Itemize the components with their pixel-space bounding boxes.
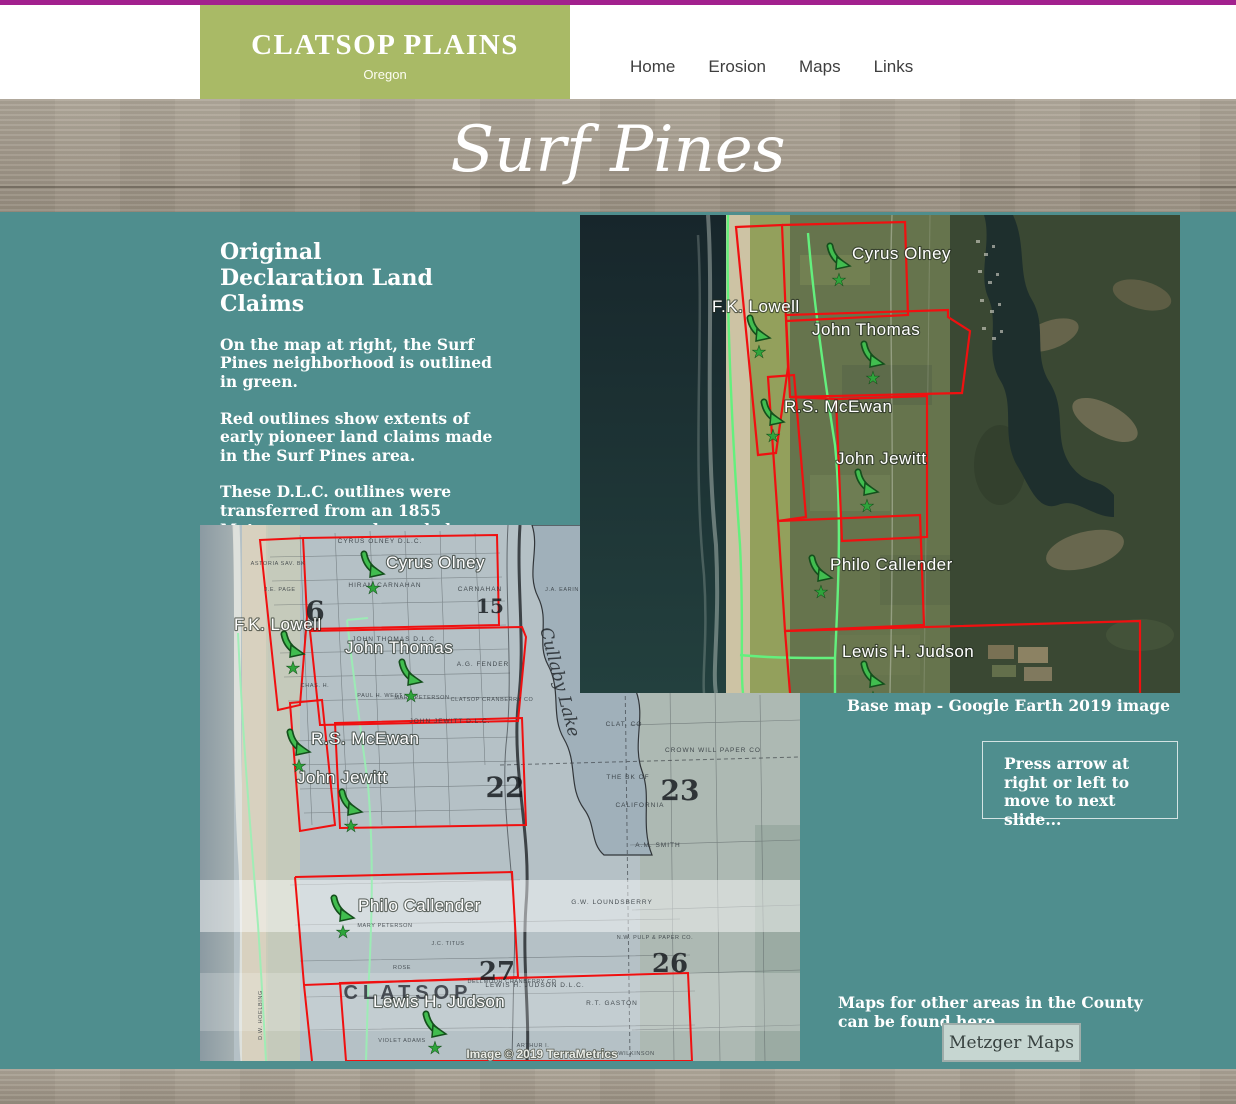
svg-text:N.W. PULP & PAPER CO.: N.W. PULP & PAPER CO. bbox=[617, 935, 694, 941]
claim-label: Philo Callender bbox=[830, 555, 953, 574]
claim-label: F.K. Lowell bbox=[234, 615, 322, 634]
top-accent-bar bbox=[0, 0, 1236, 5]
svg-text:HIRAM CARNAHAN: HIRAM CARNAHAN bbox=[348, 582, 421, 589]
svg-text:J.C. TITUS: J.C. TITUS bbox=[431, 941, 464, 947]
svg-text:A.M. SMITH: A.M. SMITH bbox=[635, 842, 680, 849]
svg-text:CYRUS OLNEY D.L.C.: CYRUS OLNEY D.L.C. bbox=[338, 538, 423, 545]
nav-item-maps[interactable]: Maps bbox=[799, 57, 841, 77]
footer-strip bbox=[0, 1069, 1236, 1104]
site-subtitle: Oregon bbox=[200, 67, 570, 82]
claim-label: Lewis H. Judson bbox=[373, 992, 505, 1011]
svg-text:A.G. FENDER: A.G. FENDER bbox=[457, 661, 510, 668]
svg-text:CHAS. H.: CHAS. H. bbox=[301, 683, 330, 689]
highlight-band bbox=[200, 880, 800, 932]
satellite-map-caption: Base map - Google Earth 2019 image bbox=[847, 696, 1207, 715]
slideshow-hint-box: Press arrow at right or left to move to … bbox=[982, 741, 1178, 819]
svg-text:22: 22 bbox=[486, 771, 525, 804]
intro-paragraph: On the map at right, the Surf Pines neig… bbox=[220, 336, 514, 392]
svg-text:15: 15 bbox=[476, 594, 504, 618]
nav-item-links[interactable]: Links bbox=[874, 57, 914, 77]
nav-item-erosion[interactable]: Erosion bbox=[708, 57, 766, 77]
claim-label: Lewis H. Judson bbox=[842, 642, 974, 661]
svg-text:R.T. GASTON: R.T. GASTON bbox=[586, 1000, 638, 1007]
nav-item-home[interactable]: Home bbox=[630, 57, 675, 77]
metzger-maps-button[interactable]: Metzger Maps bbox=[942, 1023, 1081, 1062]
site-header: CLATSOP PLAINS Oregon Home Erosion Maps … bbox=[0, 5, 1236, 99]
claim-label: John Thomas bbox=[345, 638, 453, 657]
claim-label: Cyrus Olney bbox=[386, 553, 485, 572]
image-credit: Image © 2019 TerraMetrics bbox=[466, 1047, 618, 1061]
svg-text:J.A. EARIN: J.A. EARIN bbox=[545, 587, 579, 593]
svg-text:MARY PETERSON: MARY PETERSON bbox=[394, 695, 449, 701]
svg-text:23: 23 bbox=[661, 774, 700, 807]
claim-label: John Jewitt bbox=[836, 449, 927, 468]
svg-text:CLATSOP CRANBERRY CO: CLATSOP CRANBERRY CO bbox=[451, 697, 534, 703]
main-nav: Home Erosion Maps Links bbox=[630, 57, 913, 77]
page-content: Original Declaration Land Claims On the … bbox=[0, 212, 1236, 1069]
site-logo[interactable]: CLATSOP PLAINS Oregon bbox=[200, 5, 570, 99]
claim-label: R.S. McEwan bbox=[311, 729, 419, 748]
svg-text:LEWIS H. JUDSON D.L.C.: LEWIS H. JUDSON D.L.C. bbox=[485, 982, 584, 989]
svg-text:CROWN WILL PAPER CO: CROWN WILL PAPER CO bbox=[665, 747, 761, 754]
intro-paragraph: Red outlines show extents of early pione… bbox=[220, 410, 514, 466]
claim-label: F.K. Lowell bbox=[712, 297, 800, 316]
beach bbox=[726, 215, 752, 693]
claim-label: R.S. McEwan bbox=[784, 397, 892, 416]
hero-banner: Surf Pines bbox=[0, 99, 1236, 212]
svg-text:26: 26 bbox=[652, 949, 688, 979]
satellite-map-figure: Cyrus Olney F.K. Lowell John Thomas R.S.… bbox=[580, 215, 1180, 693]
svg-text:ASTORIA SAV. BK: ASTORIA SAV. BK bbox=[251, 561, 306, 567]
claim-label: John Jewitt bbox=[297, 768, 388, 787]
svg-text:G.W. LOUNDSBERRY: G.W. LOUNDSBERRY bbox=[571, 899, 653, 906]
site-title: CLATSOP PLAINS bbox=[200, 29, 570, 62]
svg-text:JOHN JEWITT D.L.C.: JOHN JEWITT D.L.C. bbox=[409, 718, 490, 725]
svg-text:CLAT. CO: CLAT. CO bbox=[606, 721, 643, 728]
svg-text:VIOLET ADAMS: VIOLET ADAMS bbox=[378, 1038, 425, 1044]
svg-text:ROSE: ROSE bbox=[393, 965, 411, 971]
svg-text:CALIFORNIA: CALIFORNIA bbox=[615, 802, 664, 809]
svg-text:THE BK OF: THE BK OF bbox=[606, 774, 649, 781]
page-title: Surf Pines bbox=[0, 113, 1236, 187]
svg-text:CARNAHAN: CARNAHAN bbox=[458, 586, 502, 593]
svg-text:D.W. HOELBING: D.W. HOELBING bbox=[258, 990, 264, 1040]
claim-label: Cyrus Olney bbox=[852, 244, 951, 263]
claim-label: Philo Callender bbox=[358, 896, 481, 915]
claim-label: John Thomas bbox=[812, 320, 920, 339]
svg-text:J.E. PAGE: J.E. PAGE bbox=[264, 587, 295, 593]
ocean bbox=[580, 215, 730, 693]
intro-heading: Original Declaration Land Claims bbox=[220, 240, 514, 318]
svg-text:MARY PETERSON: MARY PETERSON bbox=[357, 923, 412, 929]
